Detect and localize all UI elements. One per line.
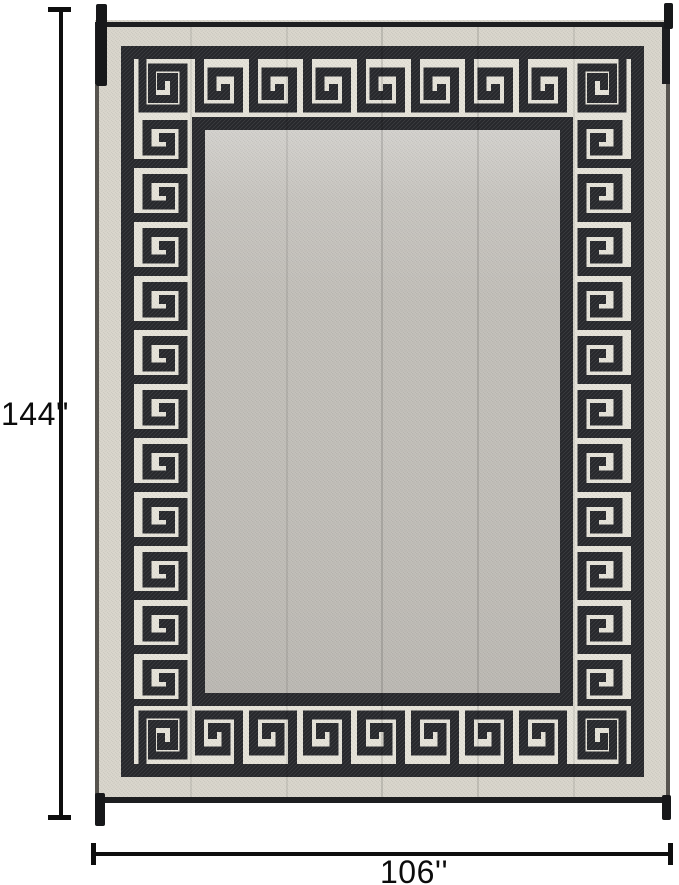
corner-tab-top-right bbox=[664, 3, 673, 29]
product-diagram: 144'' 106'' bbox=[0, 0, 679, 885]
height-dimension-label: 144'' bbox=[1, 398, 59, 432]
width-dimension-label: 106'' bbox=[380, 856, 446, 885]
rug-image bbox=[95, 20, 670, 803]
binding-left bbox=[95, 22, 99, 803]
width-dimension-cap-right bbox=[668, 843, 673, 865]
corner-tab-bottom-left bbox=[95, 793, 105, 826]
rug-vector bbox=[95, 20, 670, 803]
binding-right bbox=[666, 22, 670, 803]
corner-tab-top-left bbox=[96, 4, 107, 86]
height-dimension-cap-top bbox=[48, 7, 71, 12]
height-dimension-cap-bottom bbox=[48, 815, 71, 820]
binding-bottom bbox=[95, 797, 670, 803]
width-dimension-cap-left bbox=[91, 843, 96, 865]
binding-top bbox=[95, 22, 670, 27]
corner-tab-bottom-right bbox=[662, 795, 671, 820]
